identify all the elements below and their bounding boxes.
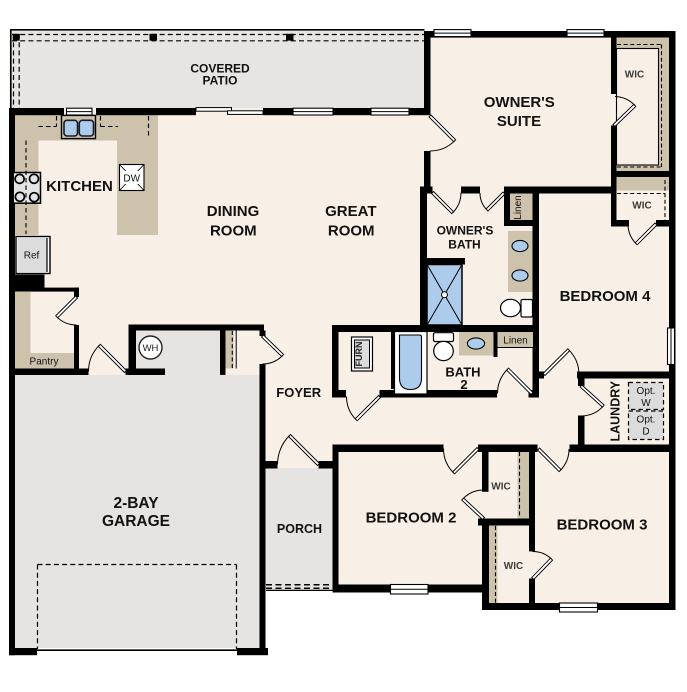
svg-text:OWNER'S: OWNER'S — [437, 224, 494, 238]
svg-text:Ref: Ref — [24, 251, 40, 262]
svg-text:WIC: WIC — [491, 482, 510, 493]
svg-text:ROOM: ROOM — [328, 223, 375, 240]
svg-text:Linen: Linen — [513, 195, 524, 219]
svg-text:OWNER'S: OWNER'S — [484, 94, 555, 111]
svg-text:WIC: WIC — [632, 201, 651, 212]
svg-text:Opt.: Opt. — [637, 386, 656, 397]
svg-text:GREAT: GREAT — [325, 203, 376, 220]
svg-text:BEDROOM 3: BEDROOM 3 — [557, 517, 648, 534]
svg-text:LAUNDRY: LAUNDRY — [609, 380, 623, 441]
svg-text:D: D — [642, 427, 649, 438]
svg-text:BEDROOM 4: BEDROOM 4 — [560, 288, 652, 305]
svg-text:FOYER: FOYER — [276, 385, 321, 400]
svg-text:PATIO: PATIO — [203, 74, 238, 88]
svg-text:SUITE: SUITE — [497, 113, 541, 130]
svg-text:W: W — [641, 398, 651, 409]
svg-text:PORCH: PORCH — [277, 522, 322, 536]
svg-text:BATH: BATH — [448, 238, 480, 252]
svg-text:KITCHEN: KITCHEN — [46, 178, 113, 195]
svg-text:Linen: Linen — [503, 336, 527, 347]
svg-text:ROOM: ROOM — [210, 223, 257, 240]
svg-text:DW: DW — [123, 174, 140, 185]
svg-text:Opt.: Opt. — [637, 415, 656, 426]
svg-text:Pantry: Pantry — [30, 357, 59, 368]
svg-text:GARAGE: GARAGE — [102, 513, 170, 530]
svg-text:BEDROOM 2: BEDROOM 2 — [366, 510, 457, 527]
svg-text:WIC: WIC — [625, 69, 644, 80]
svg-text:2-BAY: 2-BAY — [113, 495, 159, 512]
svg-text:WIC: WIC — [504, 561, 523, 572]
svg-text:FURN: FURN — [354, 342, 364, 367]
svg-text:WH: WH — [143, 343, 159, 354]
svg-text:2: 2 — [460, 377, 467, 392]
svg-text:DINING: DINING — [207, 203, 260, 220]
